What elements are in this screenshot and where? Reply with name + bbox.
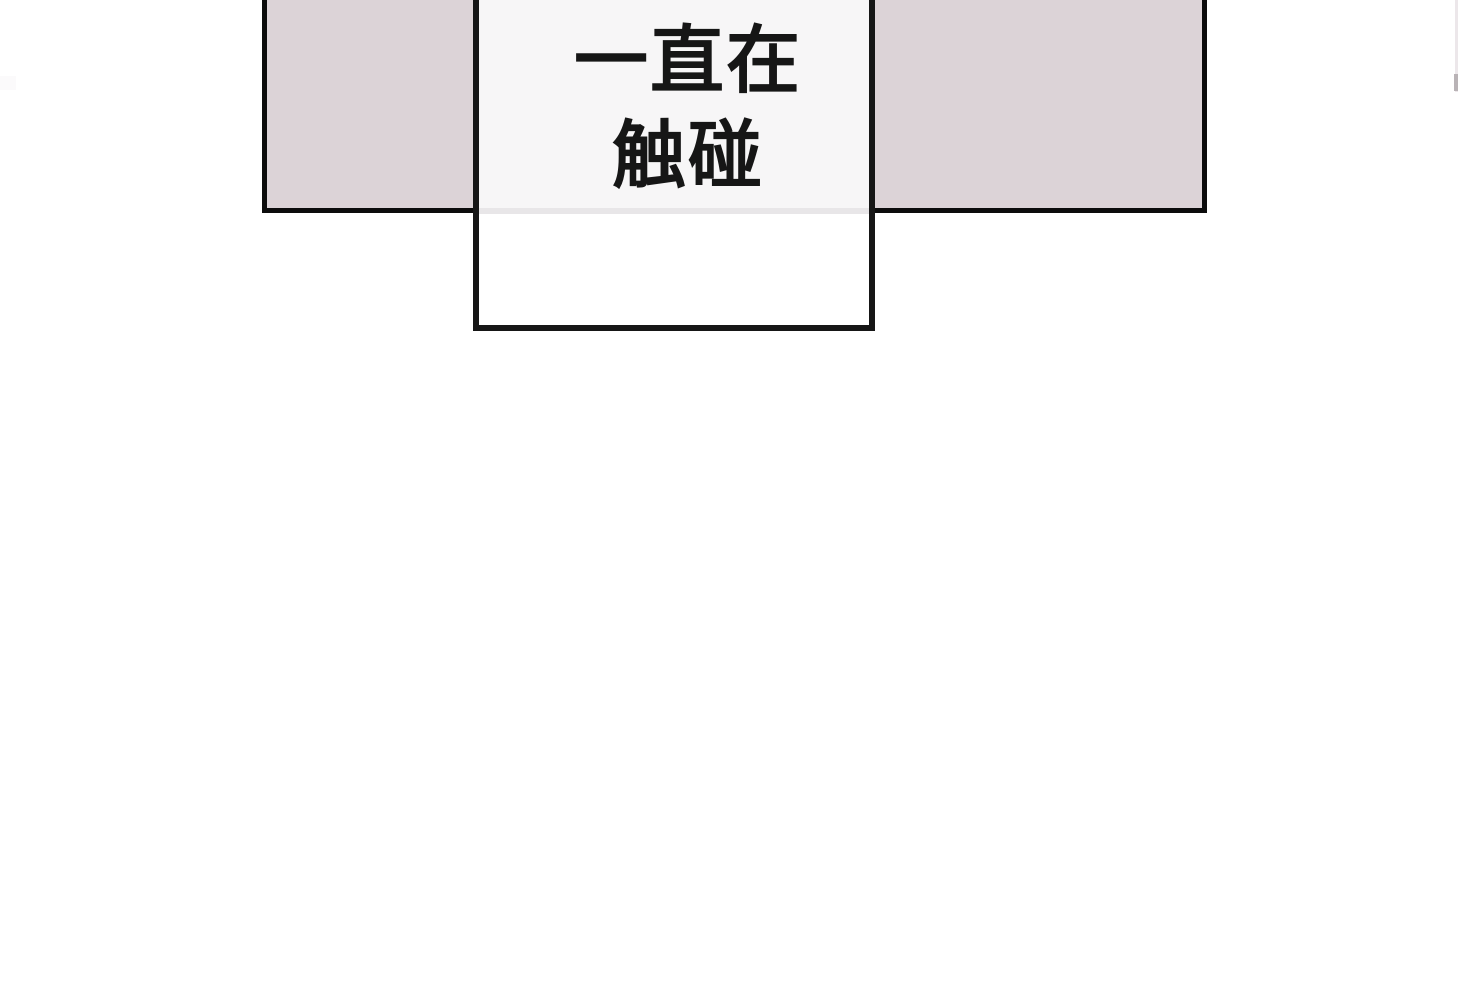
comic-page: 一直在 触碰 (0, 0, 1460, 996)
speech-text: 一直在 触碰 (493, 14, 875, 204)
adjacent-panel-edge-blob (1454, 74, 1458, 91)
panel-border-showthrough-line (479, 208, 869, 214)
speech-text-line-2: 触碰 (493, 109, 875, 204)
speech-bubble: 一直在 触碰 (473, 0, 875, 331)
speech-text-line-1: 一直在 (493, 14, 875, 109)
page-edge-artifact (0, 76, 16, 90)
